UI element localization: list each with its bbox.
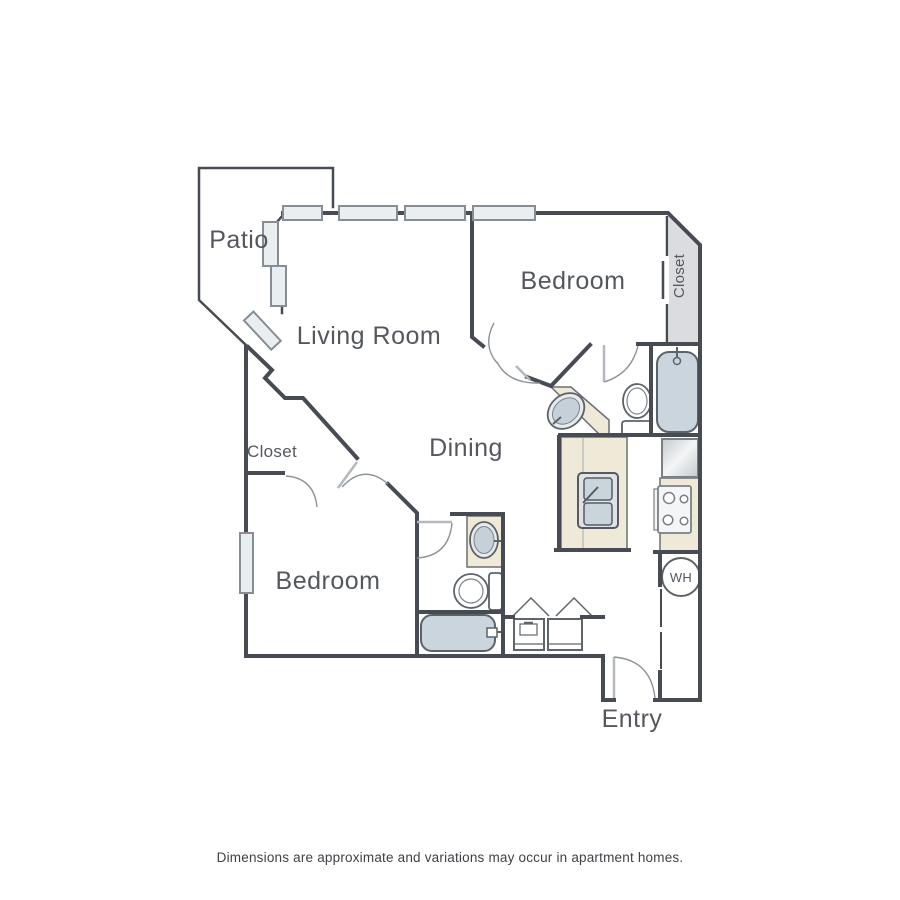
disclaimer-text: Dimensions are approximate and variation… <box>217 850 684 865</box>
window-icon <box>283 206 322 220</box>
window-icon <box>405 206 465 220</box>
door-swing-arc <box>604 346 638 382</box>
water-heater-label: WH <box>670 570 692 585</box>
window-icon <box>240 533 253 593</box>
burner-icon <box>663 515 673 525</box>
washer-lid-icon <box>520 624 537 635</box>
burner-icon <box>680 517 688 525</box>
bifold-door-icon <box>556 598 592 616</box>
vanity-sink-icon <box>540 386 591 437</box>
door-leaf <box>516 366 530 380</box>
closet-label-left: Closet <box>247 442 297 461</box>
room-label-bedroom-top: Bedroom <box>521 267 626 295</box>
floorplan-svg: WH <box>0 0 900 900</box>
tub-faucet-icon <box>487 628 497 637</box>
door-swing-arc <box>286 476 317 507</box>
window-icon <box>339 206 397 220</box>
door-swing-arc <box>342 474 388 487</box>
bath2-fixtures <box>421 522 504 651</box>
laundry-fixtures <box>513 598 592 650</box>
closet-label-right: Closet <box>671 253 688 298</box>
sliding-closet-door-icon <box>663 216 667 342</box>
bifold-door-icon <box>513 598 549 616</box>
floorplan-page: WH <box>0 0 900 900</box>
stove-icon <box>658 486 691 533</box>
sink-basin-icon <box>584 503 612 525</box>
room-label-dining: Dining <box>429 434 503 462</box>
door-swing-arc <box>489 323 497 363</box>
refrigerator-icon <box>662 439 698 477</box>
tub-drain-icon <box>674 358 681 365</box>
wall-outer-bottom-left <box>246 347 603 656</box>
room-label-living-room: Living Room <box>297 322 441 350</box>
wall-bedroom1-divider <box>472 213 483 346</box>
room-label-entry: Entry <box>602 705 663 733</box>
door-leaf <box>338 462 357 488</box>
burner-icon <box>680 495 688 503</box>
sink-basin-icon <box>474 527 494 554</box>
door-swing-arc <box>614 657 655 698</box>
wall-entry-jamb <box>603 656 614 700</box>
door-swing-arc <box>417 523 452 558</box>
wall-bath2-west <box>388 484 417 656</box>
water-heater-icon: WH <box>662 558 700 596</box>
bathtub-icon <box>421 615 495 651</box>
burner-icon <box>664 493 675 504</box>
window-icon <box>244 312 281 350</box>
window-icon <box>473 206 535 220</box>
room-label-patio: Patio <box>209 226 268 254</box>
wall-dining-corner <box>527 345 590 386</box>
window-icon <box>271 266 286 306</box>
dryer-icon <box>548 619 582 650</box>
room-label-bedroom-bottom: Bedroom <box>276 567 381 595</box>
toilet-tank-icon <box>489 573 502 610</box>
